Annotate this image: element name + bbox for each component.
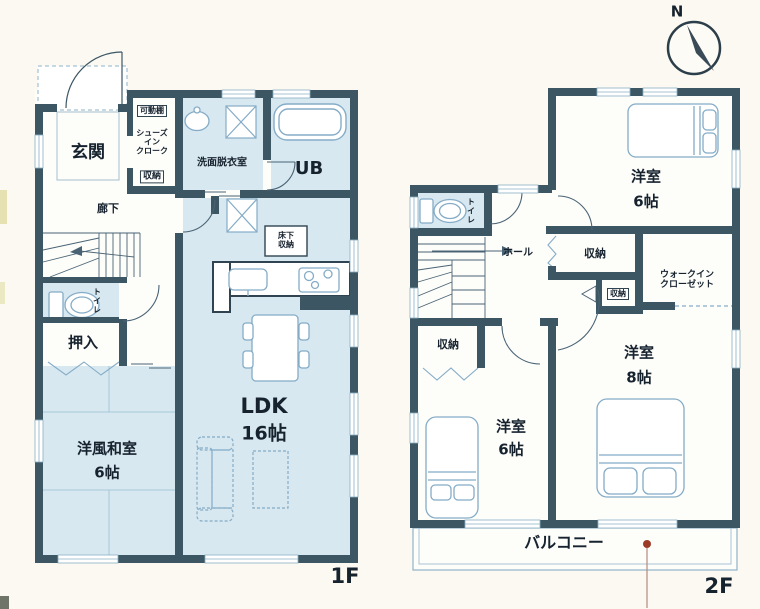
floor2-plan xyxy=(410,88,740,608)
storage-lower-label: 収納 xyxy=(437,339,459,351)
double-bed-icon xyxy=(597,399,684,497)
bedroom-sw-size: 6帖 xyxy=(498,442,523,459)
toilet-1f-label: トイレ xyxy=(92,288,101,315)
floorplan-drawing xyxy=(0,0,760,609)
storage-upper-label: 収納 xyxy=(584,248,606,260)
shoes-closet-label: シューズ イン クローク xyxy=(136,130,168,157)
storage-middle-label: 収納 xyxy=(607,288,629,300)
bedroom-ne-size: 6帖 xyxy=(633,194,658,211)
bed-icon-ne xyxy=(628,104,718,157)
ldk-size: 16帖 xyxy=(241,423,286,444)
bathtub-icon xyxy=(274,104,346,140)
hall-label: ホール xyxy=(503,247,533,258)
japanese-room-label: 洋風和室 xyxy=(77,441,137,458)
stove-icon xyxy=(299,268,339,292)
underfloor-storage-line2: 収納 xyxy=(278,241,294,250)
shoes-storage-label: 収納 xyxy=(140,170,164,183)
washing-machine-icon xyxy=(226,106,256,138)
floor2-label: 2F xyxy=(705,575,734,599)
floor1-label: 1F xyxy=(331,565,360,589)
washroom-label: 洗面脱衣室 xyxy=(197,157,247,168)
north-label: N xyxy=(671,4,684,21)
shoes-closet-line3: クローク xyxy=(136,147,168,156)
walkin-closet-line1: ウォークイン xyxy=(660,270,714,280)
balcony-label: バルコニー xyxy=(524,534,604,552)
storage-cross-box-icon xyxy=(227,199,257,232)
bedroom-se-label: 洋室 xyxy=(624,345,654,362)
hallway-label: 廊下 xyxy=(97,203,119,215)
movable-shelf-label: 可動棚 xyxy=(137,105,167,117)
toilet-2f-label: トイレ xyxy=(466,198,475,225)
marker-dot xyxy=(643,540,651,548)
closet-label: 押入 xyxy=(68,335,98,352)
entrance-porch xyxy=(38,66,127,110)
walkin-closet-label: ウォークイン クローゼット xyxy=(660,270,714,290)
walkin-closet-line2: クローゼット xyxy=(660,280,714,290)
bedroom-sw-label: 洋室 xyxy=(496,419,526,436)
unit-bath-label: UB xyxy=(295,159,323,179)
bedroom-ne-label: 洋室 xyxy=(631,169,661,186)
underfloor-storage-label: 床下 収納 xyxy=(278,232,294,250)
ldk-label: LDK xyxy=(240,395,287,419)
entrance-label: 玄関 xyxy=(71,143,105,162)
toilet-icon-2f xyxy=(420,199,466,223)
bedroom-se-size: 8帖 xyxy=(626,370,651,387)
scan-artifacts xyxy=(0,190,9,609)
floorplan-page: 玄関 可動棚 シューズ イン クローク 収納 廊下 洗面脱衣室 UB 床下 収納… xyxy=(0,0,760,609)
bed-icon-sw xyxy=(426,417,478,518)
compass-icon xyxy=(668,22,720,74)
floor1-plan xyxy=(35,52,358,563)
japanese-room-size: 6帖 xyxy=(94,465,119,482)
